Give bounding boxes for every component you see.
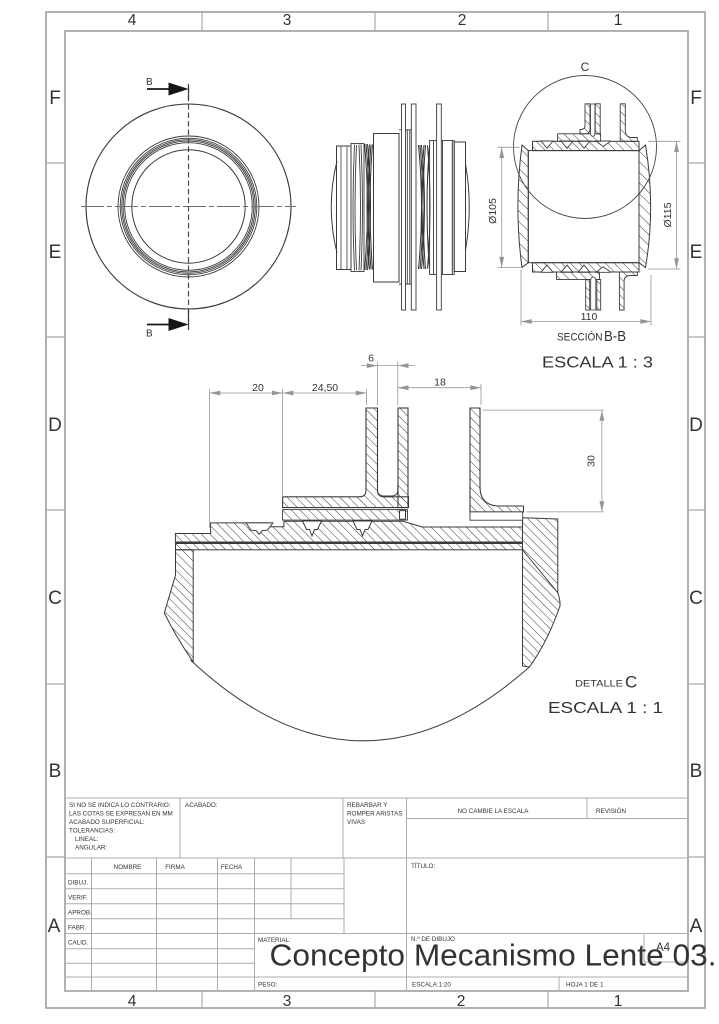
svg-text:B-B: B-B [604,328,626,345]
svg-text:SI NO SE INDICA LO CONTRARIO:: SI NO SE INDICA LO CONTRARIO: [69,802,171,809]
svg-text:E: E [690,242,703,263]
svg-text:F: F [690,88,702,109]
svg-text:2: 2 [458,12,467,29]
svg-text:PESO:: PESO: [258,982,277,989]
svg-text:D: D [689,415,703,436]
svg-text:REBARBAR Y: REBARBAR Y [347,802,388,809]
svg-text:2: 2 [457,993,466,1010]
svg-text:SECCIÓN: SECCIÓN [557,331,603,344]
svg-text:110: 110 [581,311,598,323]
svg-text:DIBUJ.: DIBUJ. [68,880,88,887]
svg-text:TOLERANCIAS:: TOLERANCIAS: [69,828,115,835]
svg-text:30: 30 [586,455,598,467]
svg-text:NO CAMBIE LA ESCALA: NO CAMBIE LA ESCALA [457,808,529,815]
svg-text:ESCALA 1 : 3: ESCALA 1 : 3 [542,355,653,372]
svg-text:LINEAL:: LINEAL: [75,836,99,843]
svg-text:ESCALA 1 : 1: ESCALA 1 : 1 [548,700,663,717]
svg-text:F: F [49,88,61,109]
svg-text:C: C [581,60,590,74]
svg-text:ANGULAR:: ANGULAR: [75,845,107,852]
svg-text:REVISIÓN: REVISIÓN [596,806,627,815]
svg-text:A: A [48,916,61,937]
svg-text:Concepto Mecanismo Lente 03.: Concepto Mecanismo Lente 03. [270,938,717,973]
svg-text:C: C [48,588,62,609]
svg-text:18: 18 [434,376,446,388]
svg-text:D: D [48,415,62,436]
svg-text:3: 3 [283,12,292,29]
svg-text:VIVAS: VIVAS [347,819,365,826]
svg-text:TÍTULO:: TÍTULO: [411,861,435,870]
svg-text:DETALLE: DETALLE [575,679,623,690]
svg-text:1: 1 [614,12,623,29]
svg-text:B: B [49,761,62,782]
svg-text:ROMPER ARISTAS: ROMPER ARISTAS [347,811,403,818]
svg-text:LAS COTAS SE EXPRESAN EN MM: LAS COTAS SE EXPRESAN EN MM [69,811,173,818]
svg-text:ACABADO SUPERFICIAL:: ACABADO SUPERFICIAL: [69,819,145,826]
svg-text:4: 4 [128,12,137,29]
svg-text:HOJA 1 DE 1: HOJA 1 DE 1 [566,982,604,989]
svg-text:20: 20 [252,382,264,394]
svg-text:APROB.: APROB. [68,910,92,917]
svg-text:C: C [689,588,703,609]
svg-text:B: B [690,761,703,782]
svg-text:C: C [625,673,637,692]
svg-text:1: 1 [614,993,623,1010]
svg-text:Ø105: Ø105 [487,198,499,224]
svg-text:24,50: 24,50 [312,382,338,394]
svg-text:ESCALA:1:20: ESCALA:1:20 [412,982,451,989]
svg-text:VERIF.: VERIF. [68,895,88,902]
svg-text:FECHA: FECHA [221,864,243,871]
svg-text:3: 3 [283,993,292,1010]
svg-text:Ø115: Ø115 [662,202,674,227]
svg-text:ACABADO:: ACABADO: [185,802,218,809]
svg-text:A: A [690,916,703,937]
svg-text:B: B [146,77,153,88]
svg-text:E: E [49,242,62,263]
svg-text:NOMBRE: NOMBRE [114,864,142,871]
svg-text:6: 6 [368,353,374,365]
svg-text:FIRMA: FIRMA [165,864,185,871]
svg-text:B: B [146,329,153,340]
svg-text:CALID.: CALID. [68,940,89,947]
svg-text:FABR.: FABR. [68,925,86,932]
svg-text:4: 4 [128,993,137,1010]
